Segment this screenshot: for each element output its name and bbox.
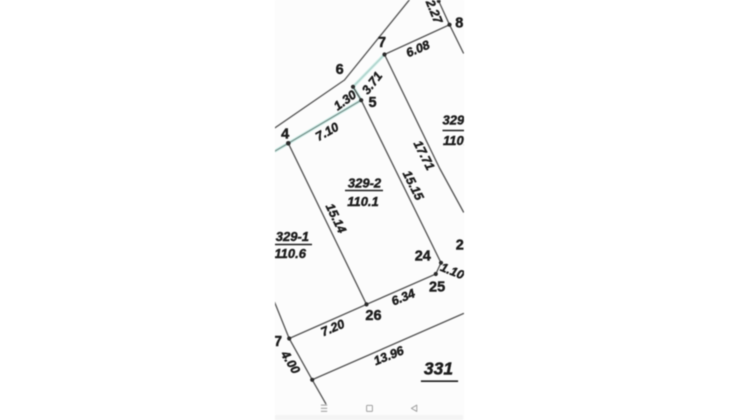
svg-text:7: 7: [275, 334, 282, 350]
svg-text:4: 4: [281, 127, 289, 143]
svg-text:8: 8: [455, 16, 463, 32]
svg-text:110.2: 110.2: [443, 133, 464, 148]
svg-text:4.00: 4.00: [277, 347, 302, 376]
svg-text:2.27: 2.27: [423, 0, 446, 27]
svg-text:329-2: 329-2: [348, 176, 382, 191]
svg-text:6.34: 6.34: [389, 286, 417, 308]
svg-text:110.1: 110.1: [347, 194, 379, 209]
svg-text:25: 25: [429, 280, 445, 296]
svg-text:7.10: 7.10: [313, 120, 341, 144]
svg-text:15.14: 15.14: [323, 201, 349, 235]
svg-text:6.08: 6.08: [404, 38, 432, 60]
svg-text:23: 23: [456, 238, 464, 254]
svg-text:26: 26: [365, 308, 381, 324]
svg-text:5: 5: [368, 95, 376, 111]
svg-text:329-1: 329-1: [276, 229, 309, 244]
svg-text:6: 6: [336, 62, 344, 78]
svg-text:331: 331: [424, 359, 453, 379]
svg-text:7.20: 7.20: [319, 317, 347, 339]
svg-text:110.6: 110.6: [275, 246, 307, 261]
svg-text:329-3: 329-3: [443, 113, 465, 128]
svg-text:24: 24: [415, 248, 431, 264]
svg-text:3.71: 3.71: [359, 69, 385, 97]
svg-text:13.96: 13.96: [372, 343, 407, 368]
svg-text:7: 7: [378, 35, 386, 51]
